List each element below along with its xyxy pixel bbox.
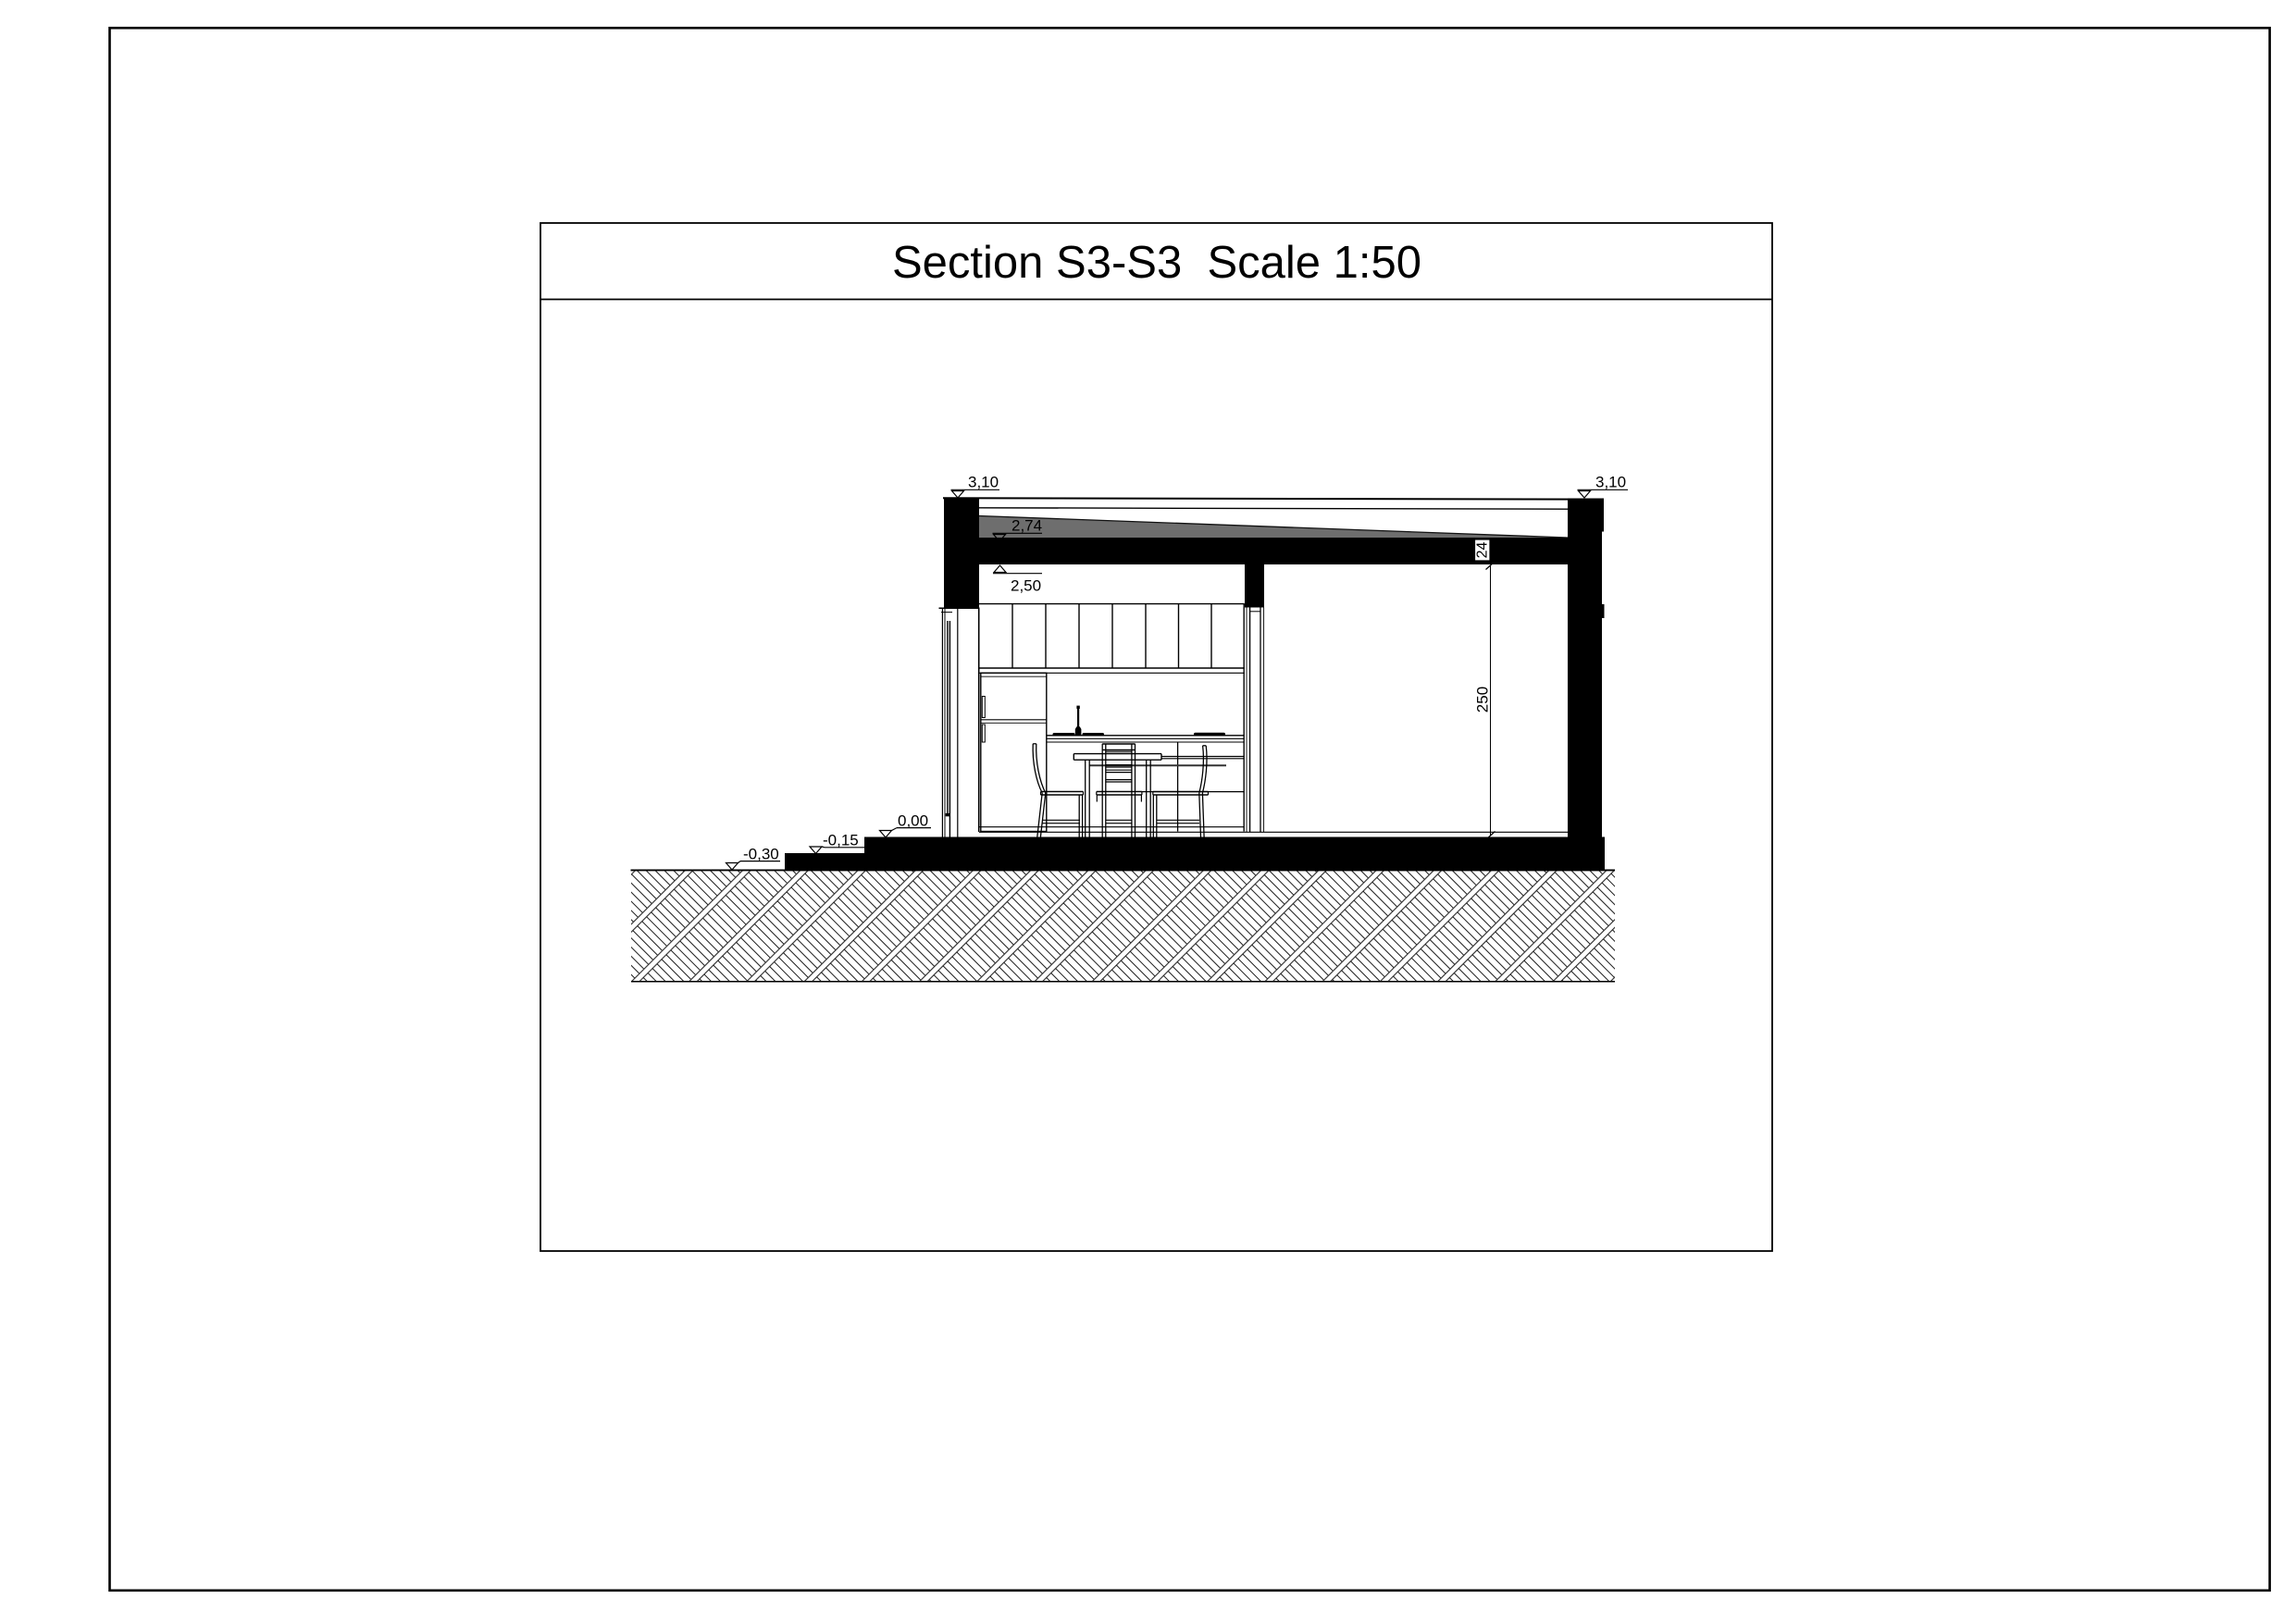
svg-text:2,50: 2,50 [1011, 577, 1041, 595]
svg-text:250: 250 [1474, 687, 1492, 712]
svg-text:-0,30: -0,30 [743, 846, 779, 863]
svg-text:-0,15: -0,15 [823, 832, 859, 849]
svg-text:Section S3-S3 Scale 1:50: Section S3-S3 Scale 1:50 [892, 238, 1421, 288]
svg-text:3,10: 3,10 [968, 474, 999, 491]
svg-text:3,10: 3,10 [1595, 474, 1626, 491]
svg-text:24: 24 [1474, 542, 1490, 559]
svg-text:2,74: 2,74 [1011, 517, 1042, 535]
svg-text:0,00: 0,00 [898, 812, 928, 830]
